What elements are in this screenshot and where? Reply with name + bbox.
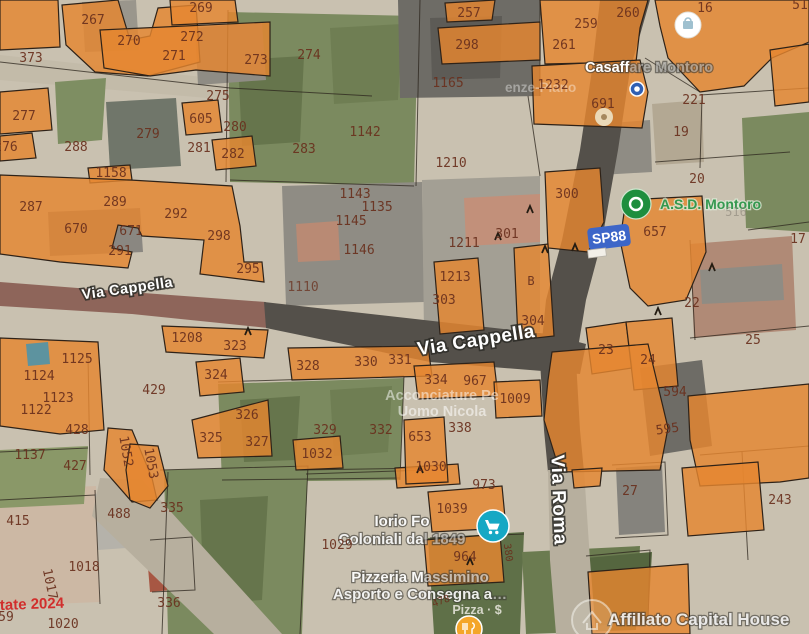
poi-acconciature-uomo-nicola[interactable]: Acconciature Pe <box>385 388 499 404</box>
date-watermark: tate 2024 <box>0 595 65 614</box>
parcel-number: 273 <box>244 53 267 68</box>
poi-affiliato-capital-house[interactable]: Affiliato Capital House <box>608 610 789 629</box>
parcel-number: 1030 <box>415 460 446 475</box>
parcel-number: 329 <box>313 423 336 438</box>
parcel-number: 276 <box>0 140 18 155</box>
pool <box>26 342 50 366</box>
parcel-number: 51 <box>792 0 808 13</box>
parcel-number: 338 <box>448 421 471 436</box>
parcel-number: 292 <box>164 207 187 222</box>
restaurant-pin[interactable] <box>456 616 482 634</box>
parcel-number: 291 <box>108 244 131 259</box>
parcel-number: 373 <box>19 51 42 66</box>
parcel-number: 336 <box>157 596 180 611</box>
parcel-number: 324 <box>204 368 228 383</box>
cadastral-parcel[interactable] <box>0 0 60 50</box>
parcel-number: 287 <box>19 200 42 215</box>
parcel-number: 274 <box>297 48 321 63</box>
parcel-number: 23 <box>598 343 614 358</box>
cadastral-parcel[interactable] <box>438 22 540 64</box>
parcel-number: 298 <box>207 229 230 244</box>
parcel-number: 328 <box>296 359 319 374</box>
parcel-number: 325 <box>199 431 222 446</box>
poi-pizzeria-massimino[interactable]: Pizzeria Massimino <box>351 569 489 586</box>
parcel-number: 331 <box>388 353 411 368</box>
parcel-number: 1210 <box>435 156 466 171</box>
poi-pizzeria-massimino[interactable]: Asporto e Consegna a… <box>333 586 507 603</box>
parcel-number: 243 <box>768 493 791 508</box>
parcel-number: 1232 <box>537 78 568 93</box>
parcel-number: 1137 <box>14 448 45 463</box>
sports-club-pin[interactable] <box>621 189 651 219</box>
parcel-number: 303 <box>432 293 455 308</box>
parcel-number: 605 <box>189 112 212 127</box>
map-view[interactable]: Casaffare Montoroenze-PianoA.S.D. Montor… <box>0 0 809 634</box>
parcel-number: 27 <box>622 484 638 499</box>
parcel-number: 1208 <box>171 331 202 346</box>
parcel-number: 261 <box>552 38 575 53</box>
parcel-number: 283 <box>292 142 315 157</box>
parcel-number: 260 <box>616 6 639 21</box>
parcel-number: 1145 <box>335 214 366 229</box>
store-pin[interactable] <box>675 12 701 38</box>
parcel-number: 1125 <box>61 352 92 367</box>
parcel-number: 17 <box>790 232 806 247</box>
parcel-number: 20 <box>689 172 705 187</box>
parcel-number: 271 <box>162 49 185 64</box>
parcel-number: 1029 <box>321 538 352 553</box>
cadastral-parcel[interactable] <box>770 44 809 106</box>
shopping-cart-pin[interactable] <box>477 510 509 542</box>
parcel-number: 323 <box>223 339 246 354</box>
parcel-number: 282 <box>221 147 244 162</box>
parcel-number: 516 <box>725 205 747 219</box>
parcel-number: 334 <box>424 373 448 388</box>
parcel-number: 259 <box>574 17 597 32</box>
parcel-number: 221 <box>682 93 705 108</box>
parcel-number: 279 <box>136 127 159 142</box>
parcel-number: 332 <box>369 423 392 438</box>
parcel-number: 24 <box>640 353 656 368</box>
parcel-number: 298 <box>455 38 478 53</box>
terrain-patch <box>296 221 340 262</box>
parcel-number: 270 <box>117 34 140 49</box>
parcel-number: 289 <box>103 195 126 210</box>
parcel-number: 301 <box>495 227 518 242</box>
poi-iorio-coloniali[interactable]: Iorio Fo <box>375 513 430 530</box>
parcel-number: 16 <box>697 1 713 16</box>
parcel-number: 327 <box>245 435 268 450</box>
parcel-number: 973 <box>472 478 495 493</box>
parcel-number: 280 <box>223 120 246 135</box>
parcel-number: 428 <box>65 423 88 438</box>
transit-stop-icon[interactable] <box>630 82 644 96</box>
parcel-number: 429 <box>142 383 165 398</box>
parcel-number: 257 <box>457 6 480 21</box>
parcel-number: 267 <box>81 13 104 28</box>
parcel-number: 269 <box>189 1 212 16</box>
parcel-number: 335 <box>160 501 183 516</box>
poi-pizza-price[interactable]: Pizza · $ <box>452 603 501 617</box>
parcel-number: 653 <box>408 430 431 445</box>
parcel-number: 1124 <box>23 369 54 384</box>
parcel-number: 594 <box>663 385 687 400</box>
parcel-number: 1165 <box>432 76 463 91</box>
parcel-number: 1039 <box>436 502 467 517</box>
parcel-number: 427 <box>63 459 86 474</box>
parcel-number: 657 <box>643 225 666 240</box>
parcel-number: 1020 <box>47 617 78 632</box>
road-sign[interactable] <box>588 248 607 258</box>
cadastral-parcel[interactable] <box>572 468 602 488</box>
parcel-number: 25 <box>745 333 761 348</box>
parcel-number: 1110 <box>287 280 318 295</box>
parcel-number: 1146 <box>343 243 374 258</box>
lodging-pin[interactable] <box>595 108 613 126</box>
cadastral-parcel[interactable] <box>682 462 764 536</box>
parcel-number: 1142 <box>349 125 380 140</box>
poi-iorio-coloniali[interactable]: Coloniali dal 1849 <box>339 531 466 548</box>
parcel-number: 964 <box>453 550 477 565</box>
parcel-number: 288 <box>64 140 87 155</box>
parcel-number: 330 <box>354 355 377 370</box>
poi-casaffare-montoro[interactable]: Casaffare Montoro <box>585 60 713 76</box>
parcel-number: 295 <box>236 262 259 277</box>
parcel-number: 22 <box>684 296 700 311</box>
parcel-number: 300 <box>555 187 578 202</box>
terrain-patch <box>330 24 402 104</box>
parcel-number: 670 <box>64 222 87 237</box>
terrain-patch <box>700 264 784 304</box>
parcel-number: 326 <box>235 408 258 423</box>
terrain-patch <box>616 465 665 535</box>
parcel-number: 671 <box>119 224 142 239</box>
poi-acconciature-uomo-nicola[interactable]: Uomo Nicola <box>398 404 488 420</box>
parcel-number: 1211 <box>448 236 479 251</box>
parcel-number: 1135 <box>361 200 392 215</box>
parcel-number: 272 <box>180 30 203 45</box>
parcel-number: 967 <box>463 374 486 389</box>
parcel-number: 19 <box>673 125 689 140</box>
parcel-number: 1158 <box>95 166 126 181</box>
terrain-patch <box>55 78 106 144</box>
map-canvas[interactable]: Casaffare Montoroenze-PianoA.S.D. Montor… <box>0 0 809 634</box>
capital-house-logo[interactable] <box>572 600 612 634</box>
terrain-patch <box>742 112 809 232</box>
parcel-number: B <box>527 274 534 288</box>
parcel-number: 281 <box>187 141 210 156</box>
parcel-number: 1009 <box>499 392 530 407</box>
parcel-number: 277 <box>12 109 35 124</box>
parcel-number: 1122 <box>20 403 51 418</box>
parcel-number: 488 <box>107 507 130 522</box>
parcel-number: 415 <box>6 514 29 529</box>
street-label[interactable]: Via Roma <box>546 454 570 545</box>
parcel-number: 1032 <box>301 447 332 462</box>
parcel-number: 1213 <box>439 270 470 285</box>
parcel-number: 275 <box>206 89 229 104</box>
parcel-number: 1018 <box>68 560 99 575</box>
